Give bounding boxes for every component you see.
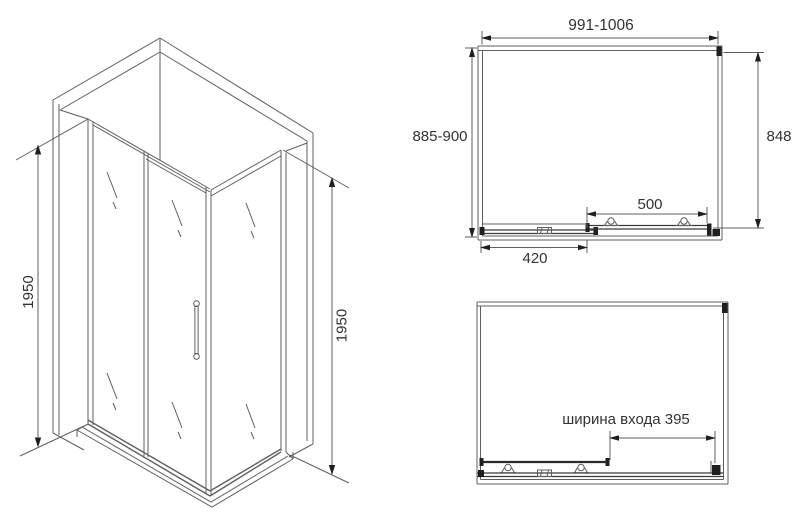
bottom-track bbox=[480, 218, 721, 236]
dim-entrance-width-label: ширина входа 395 bbox=[562, 411, 690, 428]
dim-overall-width-label: 991-1006 bbox=[568, 17, 634, 34]
dimension-side-depth: 848 bbox=[713, 52, 792, 230]
shower-tray bbox=[77, 420, 293, 507]
glass-reflection-marks bbox=[107, 172, 255, 439]
roller-icon bbox=[603, 218, 619, 226]
dim-side-depth-label: 848 bbox=[766, 128, 791, 145]
plan-rectangle bbox=[477, 302, 728, 484]
technical-drawing-sheet: 1950 1950 bbox=[0, 0, 800, 513]
dimension-overall-width: 991-1006 bbox=[481, 17, 719, 45]
dimension-height-left: 1950 bbox=[16, 119, 88, 456]
back-walls bbox=[53, 38, 313, 457]
isometric-view: 1950 1950 bbox=[16, 38, 351, 507]
open-door-plan-view: ширина входа 395 bbox=[477, 302, 728, 484]
wall-profile-marker bbox=[717, 47, 722, 57]
door-handle-icon bbox=[194, 301, 200, 360]
dimension-fixed-panel: 420 bbox=[480, 240, 588, 267]
shower-enclosure-drawing: 1950 1950 bbox=[0, 0, 800, 513]
dim-height-left-label: 1950 bbox=[20, 275, 37, 308]
roller-icon bbox=[676, 218, 692, 226]
bottom-track bbox=[477, 461, 724, 477]
plan-rectangle bbox=[478, 46, 722, 240]
wall-profile-marker bbox=[722, 303, 728, 313]
sliding-door-open bbox=[480, 458, 610, 473]
dim-overall-depth-label: 885-900 bbox=[412, 128, 467, 145]
dim-fixed-panel-label: 420 bbox=[522, 250, 547, 267]
roller-icon bbox=[573, 464, 589, 473]
roller-icon bbox=[500, 464, 516, 473]
dimension-height-right: 1950 bbox=[283, 150, 351, 483]
top-plan-view: 991-1006 885-900 848 500 bbox=[412, 17, 791, 267]
dimension-entrance-width: ширина входа 395 bbox=[562, 411, 716, 463]
dimension-overall-depth: 885-900 bbox=[412, 47, 477, 238]
enclosure-frame bbox=[88, 119, 286, 496]
dim-door-width-label: 500 bbox=[637, 196, 662, 213]
dimension-door-width: 500 bbox=[586, 196, 708, 228]
dim-height-right-label: 1950 bbox=[334, 309, 351, 342]
